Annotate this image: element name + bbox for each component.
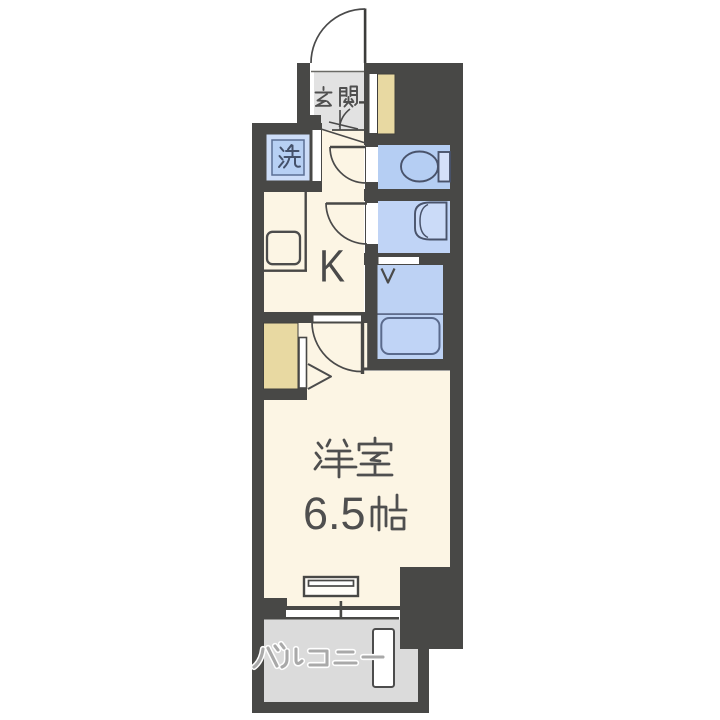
svg-text:6.5: 6.5: [303, 488, 366, 539]
svg-text:K: K: [319, 241, 345, 292]
